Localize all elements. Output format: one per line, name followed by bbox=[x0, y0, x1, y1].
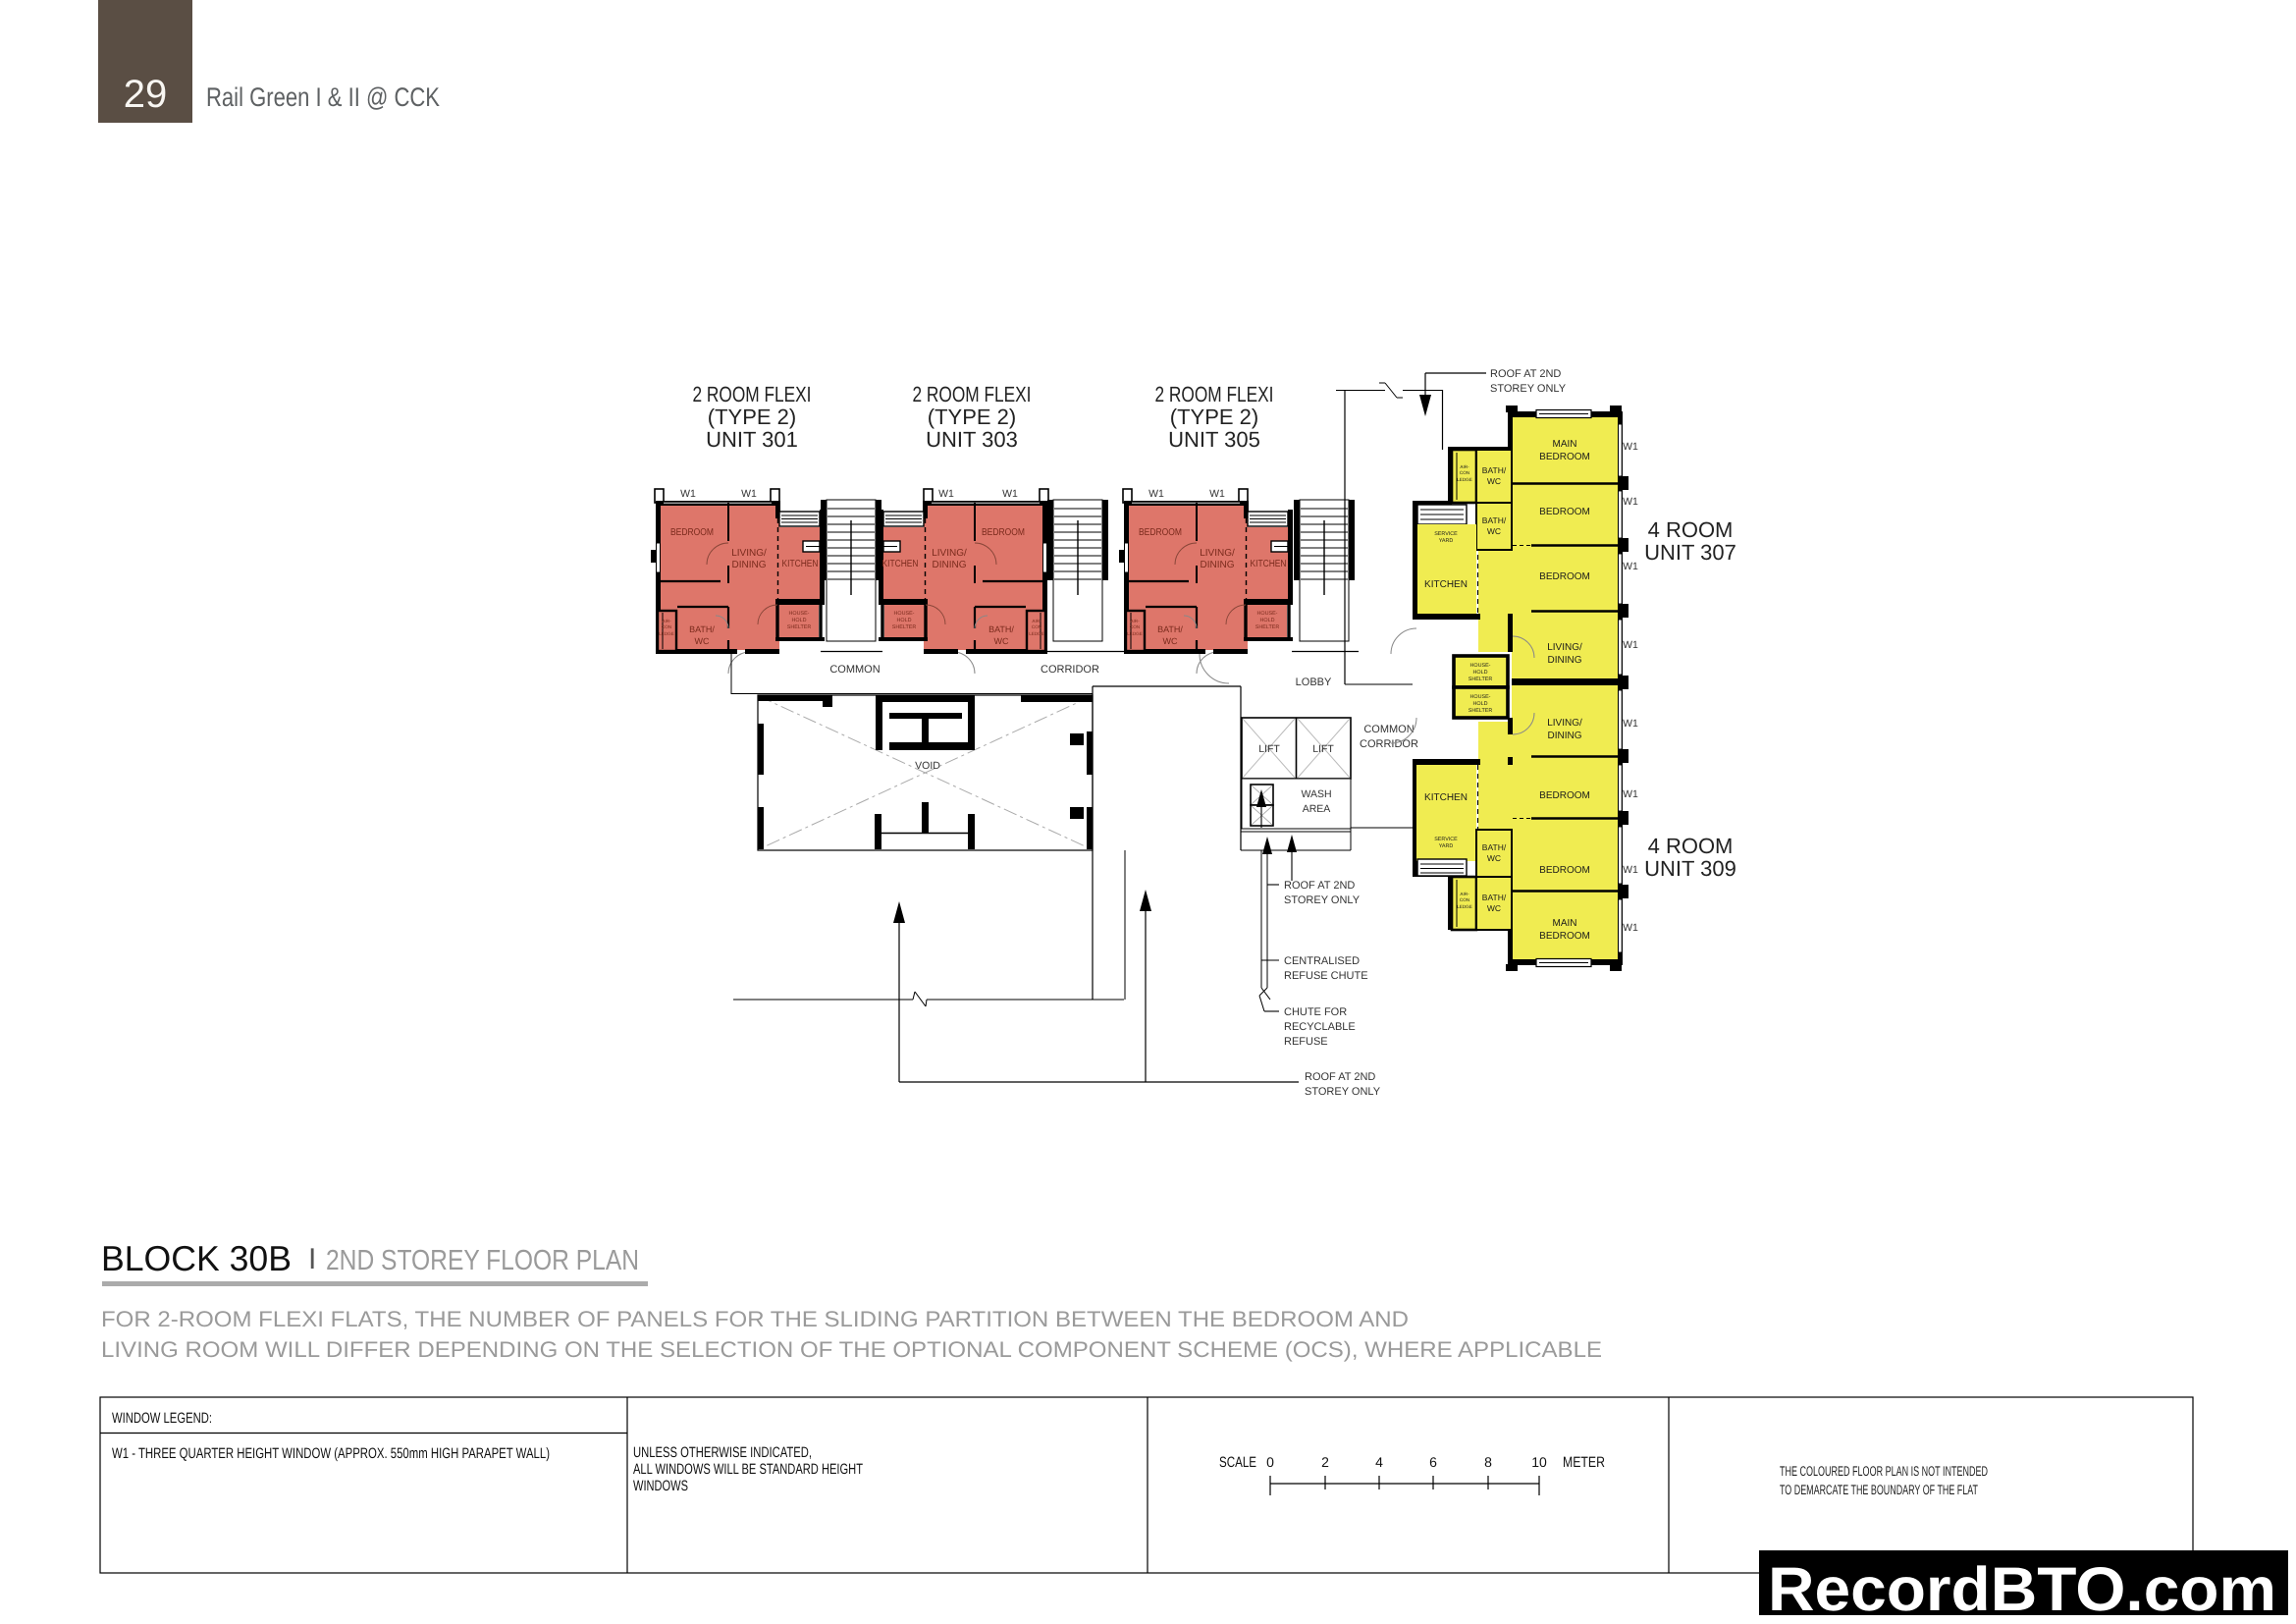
svg-text:HOLD: HOLD bbox=[1473, 670, 1488, 676]
svg-text:HOLD: HOLD bbox=[1260, 618, 1275, 623]
svg-text:W1: W1 bbox=[1623, 496, 1638, 508]
svg-text:WC: WC bbox=[1487, 476, 1501, 486]
svg-text:CON: CON bbox=[1460, 897, 1469, 902]
svg-text:LEDGE: LEDGE bbox=[659, 631, 674, 636]
svg-text:LIVING/: LIVING/ bbox=[932, 548, 967, 559]
svg-text:AIR-: AIR- bbox=[1460, 892, 1469, 896]
svg-text:WC: WC bbox=[994, 636, 1009, 646]
svg-text:HOUSE-: HOUSE- bbox=[894, 611, 915, 617]
svg-text:CON: CON bbox=[1032, 624, 1041, 629]
svg-text:LIVING/: LIVING/ bbox=[1547, 718, 1582, 729]
svg-text:WC: WC bbox=[1487, 903, 1501, 913]
svg-text:KITCHEN: KITCHEN bbox=[782, 559, 819, 569]
svg-text:W1: W1 bbox=[1623, 922, 1638, 934]
svg-text:YARD: YARD bbox=[1439, 843, 1454, 849]
svg-text:BEDROOM: BEDROOM bbox=[1539, 507, 1590, 517]
svg-text:LIVING ROOM WILL DIFFER DEPEND: LIVING ROOM WILL DIFFER DEPENDING ON THE… bbox=[101, 1337, 1602, 1362]
svg-text:W1: W1 bbox=[1623, 788, 1638, 800]
svg-text:YARD: YARD bbox=[1439, 538, 1454, 544]
svg-text:ROOF AT 2ND: ROOF AT 2ND bbox=[1490, 368, 1561, 380]
svg-text:ROOF AT 2ND: ROOF AT 2ND bbox=[1284, 880, 1355, 892]
svg-text:AIR-: AIR- bbox=[662, 619, 671, 623]
svg-text:W1: W1 bbox=[741, 488, 757, 500]
svg-text:W1: W1 bbox=[1209, 488, 1225, 500]
svg-text:BATH/: BATH/ bbox=[1482, 842, 1507, 852]
svg-text:CON: CON bbox=[1130, 624, 1140, 629]
svg-text:HOUSE-: HOUSE- bbox=[1470, 663, 1491, 669]
svg-text:STOREY ONLY: STOREY ONLY bbox=[1305, 1086, 1381, 1098]
svg-text:BEDROOM: BEDROOM bbox=[1539, 931, 1590, 942]
svg-text:BEDROOM: BEDROOM bbox=[1539, 571, 1590, 582]
svg-text:KITCHEN: KITCHEN bbox=[882, 559, 919, 569]
svg-text:Rail Green I & II @ CCK: Rail Green I & II @ CCK bbox=[206, 82, 440, 112]
svg-text:W1: W1 bbox=[1623, 864, 1638, 876]
svg-text:SHELTER: SHELTER bbox=[787, 624, 812, 630]
svg-text:METER: METER bbox=[1563, 1454, 1605, 1471]
svg-text:COMMON: COMMON bbox=[829, 664, 880, 676]
svg-text:W1: W1 bbox=[938, 488, 954, 500]
svg-text:LIFT: LIFT bbox=[1258, 743, 1280, 755]
svg-text:W1: W1 bbox=[1623, 718, 1638, 730]
svg-text:DINING: DINING bbox=[933, 560, 967, 570]
svg-text:LEDGE: LEDGE bbox=[1457, 904, 1472, 909]
svg-text:I: I bbox=[308, 1243, 316, 1275]
svg-text:WC: WC bbox=[1487, 526, 1501, 536]
svg-text:10: 10 bbox=[1531, 1454, 1547, 1470]
svg-text:VOID: VOID bbox=[915, 760, 940, 772]
svg-text:AIR-: AIR- bbox=[1460, 464, 1469, 469]
svg-text:8: 8 bbox=[1484, 1454, 1492, 1470]
svg-text:W1: W1 bbox=[1148, 488, 1164, 500]
svg-text:WC: WC bbox=[1487, 853, 1501, 863]
svg-text:THE COLOURED FLOOR PLAN IS NOT: THE COLOURED FLOOR PLAN IS NOT INTENDED bbox=[1780, 1463, 1988, 1479]
svg-text:CON: CON bbox=[662, 624, 671, 629]
svg-text:KITCHEN: KITCHEN bbox=[1251, 559, 1287, 569]
svg-text:UNIT 305: UNIT 305 bbox=[1168, 427, 1260, 452]
svg-text:LEDGE: LEDGE bbox=[1457, 477, 1472, 482]
svg-text:AREA: AREA bbox=[1303, 803, 1331, 815]
svg-text:REFUSE CHUTE: REFUSE CHUTE bbox=[1284, 970, 1368, 982]
svg-text:SHELTER: SHELTER bbox=[892, 624, 917, 630]
svg-text:UNIT 307: UNIT 307 bbox=[1644, 540, 1736, 565]
svg-text:UNLESS OTHERWISE INDICATED,: UNLESS OTHERWISE INDICATED, bbox=[633, 1444, 812, 1461]
svg-text:6: 6 bbox=[1429, 1454, 1437, 1470]
svg-text:UNIT 309: UNIT 309 bbox=[1644, 856, 1736, 881]
svg-text:DINING: DINING bbox=[732, 560, 767, 570]
svg-text:W1: W1 bbox=[1623, 561, 1638, 572]
svg-text:(TYPE 2): (TYPE 2) bbox=[708, 405, 796, 429]
svg-text:BEDROOM: BEDROOM bbox=[1139, 527, 1182, 538]
svg-text:4: 4 bbox=[1375, 1454, 1383, 1470]
svg-text:TO DEMARCATE THE BOUNDARY OF T: TO DEMARCATE THE BOUNDARY OF THE FLAT bbox=[1780, 1482, 1978, 1497]
svg-text:MAIN: MAIN bbox=[1553, 439, 1577, 450]
svg-text:KITCHEN: KITCHEN bbox=[1424, 579, 1468, 590]
svg-text:CORRIDOR: CORRIDOR bbox=[1041, 664, 1099, 676]
svg-text:SHELTER: SHELTER bbox=[1255, 624, 1280, 630]
svg-text:SERVICE: SERVICE bbox=[1434, 531, 1458, 537]
svg-text:STOREY ONLY: STOREY ONLY bbox=[1490, 383, 1567, 395]
svg-text:UNIT 303: UNIT 303 bbox=[926, 427, 1018, 452]
svg-text:4 ROOM: 4 ROOM bbox=[1648, 517, 1734, 542]
svg-text:29: 29 bbox=[124, 73, 168, 116]
svg-text:RecordBTO.com: RecordBTO.com bbox=[1768, 1555, 2276, 1624]
svg-text:2 ROOM FLEXI: 2 ROOM FLEXI bbox=[1155, 382, 1274, 406]
svg-text:CON: CON bbox=[1460, 470, 1469, 475]
svg-text:LIVING/: LIVING/ bbox=[1547, 642, 1582, 653]
svg-text:LIVING/: LIVING/ bbox=[731, 548, 767, 559]
svg-text:CORRIDOR: CORRIDOR bbox=[1360, 738, 1418, 750]
svg-text:BEDROOM: BEDROOM bbox=[1539, 865, 1590, 876]
svg-text:UNIT 301: UNIT 301 bbox=[706, 427, 798, 452]
svg-text:2 ROOM FLEXI: 2 ROOM FLEXI bbox=[693, 382, 812, 406]
svg-text:SHELTER: SHELTER bbox=[1468, 677, 1493, 682]
svg-text:ROOF AT 2ND: ROOF AT 2ND bbox=[1305, 1071, 1375, 1083]
svg-text:REFUSE: REFUSE bbox=[1284, 1036, 1328, 1048]
svg-text:LOBBY: LOBBY bbox=[1296, 677, 1332, 688]
svg-text:BATH/: BATH/ bbox=[1482, 515, 1507, 525]
svg-text:BLOCK 30B: BLOCK 30B bbox=[101, 1238, 292, 1278]
svg-text:LEDGE: LEDGE bbox=[1127, 631, 1143, 636]
svg-text:BEDROOM: BEDROOM bbox=[670, 527, 714, 538]
svg-text:HOUSE-: HOUSE- bbox=[789, 611, 810, 617]
svg-text:BATH/: BATH/ bbox=[1482, 465, 1507, 475]
svg-text:W1: W1 bbox=[680, 488, 696, 500]
svg-text:4 ROOM: 4 ROOM bbox=[1648, 834, 1734, 858]
svg-text:DINING: DINING bbox=[1201, 560, 1235, 570]
svg-text:2 ROOM FLEXI: 2 ROOM FLEXI bbox=[913, 382, 1032, 406]
svg-text:SCALE: SCALE bbox=[1219, 1454, 1256, 1471]
svg-text:MAIN: MAIN bbox=[1553, 918, 1577, 929]
svg-text:COMMON: COMMON bbox=[1363, 724, 1414, 735]
svg-text:LEDGE: LEDGE bbox=[1029, 631, 1044, 636]
svg-text:HOUSE-: HOUSE- bbox=[1257, 611, 1278, 617]
svg-text:(TYPE 2): (TYPE 2) bbox=[1170, 405, 1258, 429]
svg-text:WINDOW LEGEND:: WINDOW LEGEND: bbox=[112, 1410, 212, 1427]
svg-text:BATH/: BATH/ bbox=[988, 624, 1014, 634]
svg-text:0: 0 bbox=[1266, 1454, 1274, 1470]
svg-text:FOR 2-ROOM FLEXI FLATS, THE NU: FOR 2-ROOM FLEXI FLATS, THE NUMBER OF PA… bbox=[101, 1307, 1409, 1331]
svg-text:(TYPE 2): (TYPE 2) bbox=[928, 405, 1016, 429]
svg-text:CHUTE FOR: CHUTE FOR bbox=[1284, 1006, 1347, 1018]
svg-text:WINDOWS: WINDOWS bbox=[633, 1478, 688, 1494]
svg-text:BEDROOM: BEDROOM bbox=[1539, 790, 1590, 801]
svg-text:STOREY ONLY: STOREY ONLY bbox=[1284, 894, 1361, 906]
svg-text:BATH/: BATH/ bbox=[689, 624, 715, 634]
svg-text:W1: W1 bbox=[1623, 639, 1638, 651]
svg-text:SERVICE: SERVICE bbox=[1434, 837, 1458, 842]
svg-text:W1 - THREE QUARTER HEIGHT WIND: W1 - THREE QUARTER HEIGHT WINDOW (APPROX… bbox=[112, 1445, 550, 1462]
svg-text:DINING: DINING bbox=[1548, 655, 1582, 666]
svg-text:BEDROOM: BEDROOM bbox=[982, 527, 1025, 538]
svg-text:WC: WC bbox=[1163, 636, 1178, 646]
svg-text:W1: W1 bbox=[1623, 441, 1638, 453]
svg-text:W1: W1 bbox=[1002, 488, 1018, 500]
svg-text:LIVING/: LIVING/ bbox=[1200, 548, 1235, 559]
svg-text:ALL WINDOWS WILL BE STANDARD H: ALL WINDOWS WILL BE STANDARD HEIGHT bbox=[633, 1461, 863, 1478]
svg-text:BATH/: BATH/ bbox=[1157, 624, 1183, 634]
svg-text:2ND STOREY FLOOR PLAN: 2ND STOREY FLOOR PLAN bbox=[326, 1245, 639, 1276]
svg-text:BEDROOM: BEDROOM bbox=[1539, 452, 1590, 462]
svg-text:DINING: DINING bbox=[1548, 731, 1582, 741]
svg-text:CENTRALISED: CENTRALISED bbox=[1284, 955, 1360, 967]
svg-text:RECYCLABLE: RECYCLABLE bbox=[1284, 1021, 1356, 1033]
svg-text:BATH/: BATH/ bbox=[1482, 893, 1507, 902]
svg-text:AIR-: AIR- bbox=[1032, 619, 1041, 623]
svg-text:SHELTER: SHELTER bbox=[1468, 708, 1493, 714]
svg-text:HOLD: HOLD bbox=[897, 618, 912, 623]
svg-text:HOLD: HOLD bbox=[1473, 701, 1488, 707]
svg-text:HOLD: HOLD bbox=[792, 618, 807, 623]
svg-text:2: 2 bbox=[1321, 1454, 1329, 1470]
svg-text:WASH: WASH bbox=[1301, 788, 1331, 800]
svg-text:LIFT: LIFT bbox=[1312, 743, 1334, 755]
svg-text:HOUSE-: HOUSE- bbox=[1470, 694, 1491, 700]
svg-text:WC: WC bbox=[695, 636, 710, 646]
svg-text:AIR-: AIR- bbox=[1130, 619, 1140, 623]
svg-text:KITCHEN: KITCHEN bbox=[1424, 792, 1468, 803]
